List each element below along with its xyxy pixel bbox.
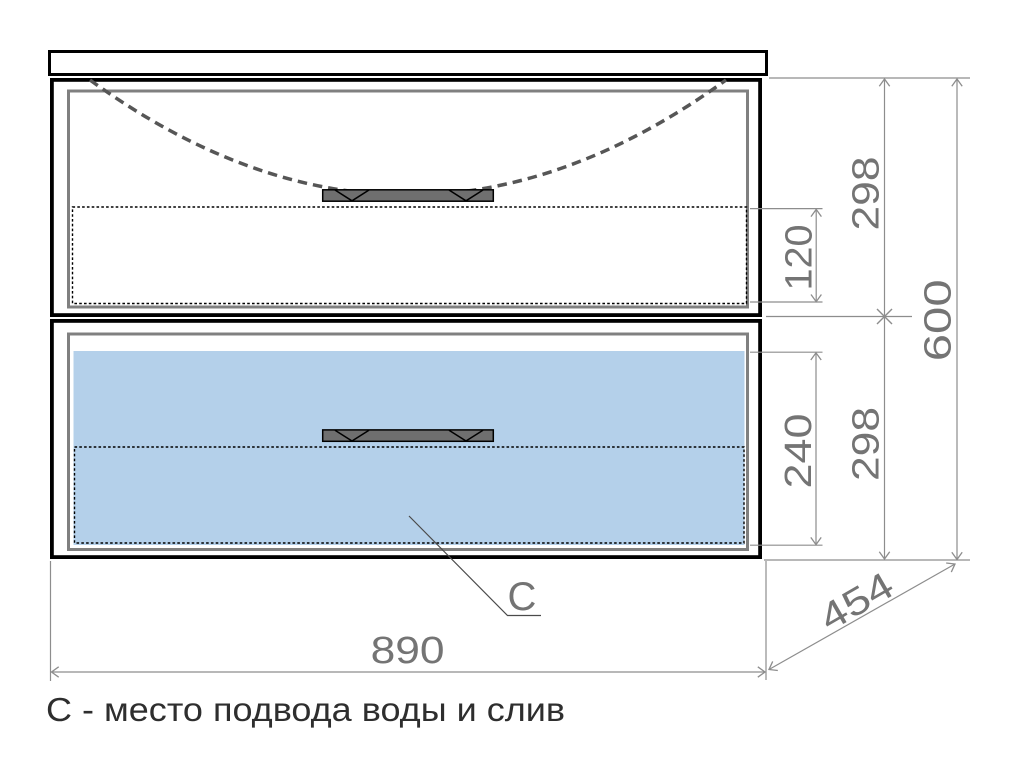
svg-text:454: 454 xyxy=(813,565,902,640)
svg-text:240: 240 xyxy=(778,414,820,489)
svg-text:298: 298 xyxy=(846,407,888,481)
svg-text:120: 120 xyxy=(779,225,821,291)
svg-text:600: 600 xyxy=(917,279,959,361)
svg-text:C: C xyxy=(508,575,537,619)
svg-text:С - место подвода воды и слив: С - место подвода воды и слив xyxy=(46,691,565,728)
svg-text:298: 298 xyxy=(846,157,888,231)
svg-text:890: 890 xyxy=(371,630,445,672)
